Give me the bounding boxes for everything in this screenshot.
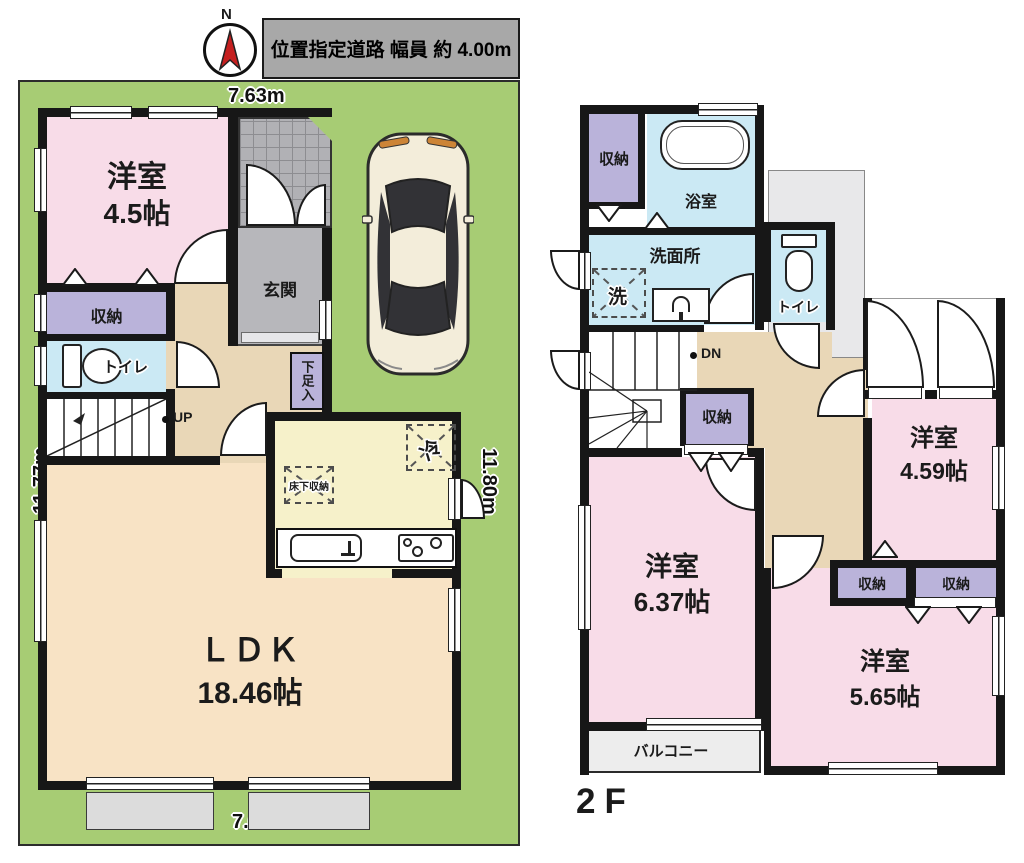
wall	[38, 334, 175, 341]
toilet2-bowl-icon	[785, 250, 813, 292]
compass-icon	[203, 23, 257, 77]
bifold-door-icon	[956, 606, 982, 624]
wall	[392, 569, 461, 578]
window	[34, 148, 47, 212]
bifold-door-icon	[62, 268, 88, 286]
wall	[925, 390, 937, 399]
genkan-step	[241, 332, 319, 343]
entrance-label: 玄関	[238, 276, 322, 301]
burner-icon	[430, 537, 442, 549]
closet-2f-a-label: 収納	[589, 148, 639, 169]
room-565-size: 5.65帖	[790, 677, 980, 712]
stairs-up-label: UP	[173, 409, 192, 425]
window-genkan	[319, 300, 332, 340]
toilet-tank-icon	[62, 344, 82, 388]
underfloor-storage-label: 床下収納	[282, 478, 336, 493]
stairs-1f	[47, 399, 166, 456]
bifold-door-icon	[905, 606, 931, 624]
closet-sill	[868, 387, 922, 399]
bifold-door-icon	[718, 452, 744, 472]
road-label: 位置指定道路 幅員 約 4.00m	[271, 35, 512, 62]
window	[248, 777, 370, 790]
washroom-label: 洗面所	[600, 242, 750, 267]
room-637-name: 洋室	[589, 545, 755, 584]
wall	[228, 108, 238, 346]
bathroom-label: 浴室	[647, 188, 755, 212]
window	[448, 588, 461, 652]
road-banner: 位置指定道路 幅員 約 4.00m	[262, 18, 520, 79]
casement-swing	[550, 250, 580, 290]
wall	[755, 448, 764, 731]
wall	[166, 389, 175, 465]
window	[992, 616, 1005, 696]
room-459-name: 洋室	[872, 418, 996, 453]
vanity-basin-icon	[672, 296, 690, 312]
window	[148, 106, 218, 119]
bifold-door-icon	[134, 268, 160, 286]
toilet-2f-label: トイレ	[768, 297, 828, 317]
stairs-dn-label: DN	[701, 345, 721, 361]
window	[86, 777, 214, 790]
bifold-door-icon	[688, 452, 714, 472]
balcony-label: バルコニー	[581, 740, 761, 761]
room-yoshitsu-1f-size: 4.5帖	[57, 192, 217, 232]
wall	[830, 568, 838, 598]
window	[70, 106, 132, 119]
terrace-step	[86, 792, 214, 830]
wall	[755, 105, 764, 330]
bifold-door-icon	[596, 204, 622, 222]
wall	[830, 560, 1005, 568]
room-yoshitsu-1f-name: 洋室	[57, 152, 217, 196]
room-637-size: 6.37帖	[589, 582, 755, 619]
wall	[166, 283, 175, 341]
window	[698, 103, 758, 116]
burner-icon	[412, 546, 423, 557]
wall	[38, 392, 175, 399]
room-565-name: 洋室	[790, 642, 980, 678]
sink-icon	[290, 534, 362, 562]
closet-sill	[939, 387, 993, 399]
wall	[906, 568, 916, 598]
terrace-step	[248, 792, 370, 830]
wall	[764, 568, 771, 775]
floor-2f-label: 2F	[576, 782, 635, 822]
shoe-closet-box: 下足入	[290, 352, 324, 410]
wall	[589, 227, 755, 235]
window	[828, 762, 938, 775]
wall	[589, 448, 682, 457]
room-459-size: 4.59帖	[872, 452, 996, 486]
window	[34, 520, 47, 642]
wall	[580, 325, 704, 332]
casement-swing	[550, 350, 580, 390]
wall	[266, 412, 461, 421]
bifold-door-icon	[872, 540, 898, 558]
wall	[638, 105, 645, 209]
car-icon	[362, 130, 474, 378]
closet-2f-b-label: 収納	[680, 406, 754, 427]
burner-icon	[403, 538, 412, 547]
laundry-label: 洗	[608, 282, 627, 309]
stairs-2f	[589, 332, 697, 448]
closet-2f-d-label: 収納	[916, 574, 996, 594]
closet-2f-c-label: 収納	[838, 574, 906, 594]
wall	[266, 421, 275, 578]
toilet-1f-label: トイレ	[103, 356, 148, 377]
window	[34, 346, 47, 386]
floorplan-canvas: N 位置指定道路 幅員 約 4.00m 7.63m 7.66m 11.77m 1…	[0, 0, 1024, 863]
ldk-size: 18.46帖	[140, 668, 360, 712]
shoe-closet-label: 下足入	[298, 360, 317, 402]
compass-n-label: N	[221, 6, 232, 23]
dn-dot	[690, 352, 697, 359]
vanity-drain-icon	[679, 312, 683, 320]
up-dot	[162, 416, 169, 423]
wall	[764, 222, 835, 230]
bifold-door-icon	[644, 212, 670, 230]
faucet-icon	[341, 553, 355, 556]
window	[34, 294, 47, 332]
closet-1f-label: 収納	[47, 303, 166, 327]
bathtub-inner	[666, 126, 744, 164]
dim-top: 7.63m	[228, 85, 285, 108]
wall	[863, 418, 872, 560]
genkan-hall-line	[238, 344, 322, 346]
toilet2-tank-icon	[781, 234, 817, 248]
ldk-name: ＬＤＫ	[140, 625, 360, 671]
window	[646, 718, 762, 731]
wall	[266, 569, 282, 578]
wall	[38, 456, 220, 465]
wall	[996, 298, 1005, 399]
backdoor-opening	[448, 478, 461, 520]
